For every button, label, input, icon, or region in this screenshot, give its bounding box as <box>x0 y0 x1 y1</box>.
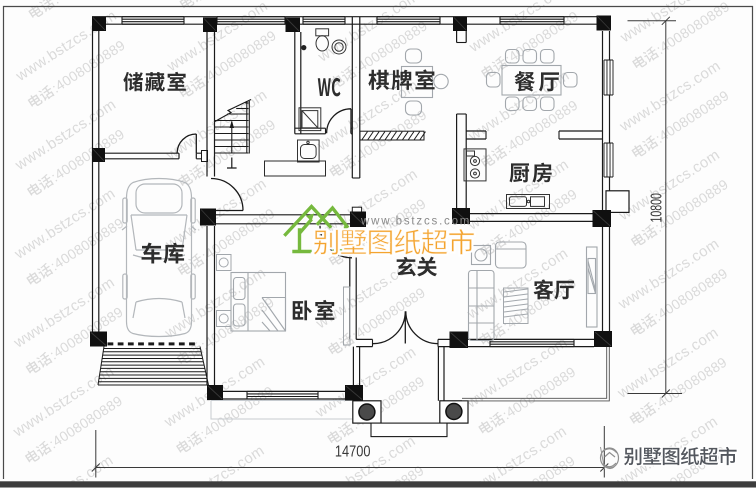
svg-text:10800: 10800 <box>647 193 665 222</box>
svg-text:14700: 14700 <box>335 443 371 461</box>
svg-text:www.bstzcs.com: www.bstzcs.com <box>360 216 471 228</box>
